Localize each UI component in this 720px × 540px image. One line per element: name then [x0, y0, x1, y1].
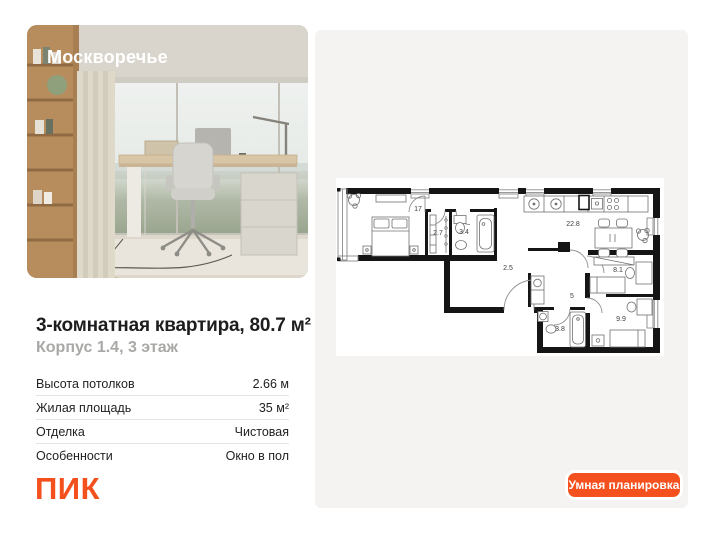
spec-row-ceiling-height: Высота потолков 2.66 м	[36, 372, 289, 396]
spec-value: 2.66 м	[253, 377, 289, 391]
pik-logo: ПИК	[35, 471, 100, 507]
room-label-bedroom-2: 9.9	[616, 316, 626, 323]
project-photo-card[interactable]: Москворечье	[27, 25, 308, 278]
spec-value: Чистовая	[235, 425, 289, 439]
spec-value: 35 м²	[259, 401, 289, 415]
room-label-wardrobe: 2.7	[433, 230, 443, 237]
floorplan-drawing: 17 2.7 3.4 22.8 2.5 5 8.1 9.9 3.8	[336, 178, 664, 356]
spec-label: Высота потолков	[36, 377, 135, 391]
floorplan: 17 2.7 3.4 22.8 2.5 5 8.1 9.9 3.8	[336, 178, 664, 356]
spec-row-finishing: Отделка Чистовая	[36, 420, 289, 444]
room-label-room: 8.1	[613, 267, 623, 274]
spec-table: Высота потолков 2.66 м Жилая площадь 35 …	[36, 372, 289, 467]
spec-row-features: Особенности Окно в пол	[36, 444, 289, 467]
room-label-bedroom: 17	[414, 206, 422, 213]
smart-plan-button[interactable]: Умная планировка	[565, 470, 683, 500]
spec-label: Жилая площадь	[36, 401, 131, 415]
spec-label: Особенности	[36, 449, 113, 463]
listing-subtitle: Корпус 1.4, 3 этаж	[36, 339, 178, 357]
room-label-bathroom: 3.4	[459, 229, 469, 236]
spec-value: Окно в пол	[226, 449, 289, 463]
spec-row-living-area: Жилая площадь 35 м²	[36, 396, 289, 420]
listing-title: 3-комнатная квартира, 80.7 м²	[36, 315, 311, 337]
project-name-overlay: Москворечье	[47, 47, 168, 68]
listing-page: Москворечье	[0, 0, 720, 540]
spec-label: Отделка	[36, 425, 85, 439]
plan-furniture	[347, 193, 652, 347]
room-label-bathroom-2: 3.8	[555, 326, 565, 333]
room-label-corridor: 5	[570, 293, 574, 300]
room-label-hallway: 2.5	[503, 265, 513, 272]
room-label-kitchen-living: 22.8	[566, 221, 580, 228]
